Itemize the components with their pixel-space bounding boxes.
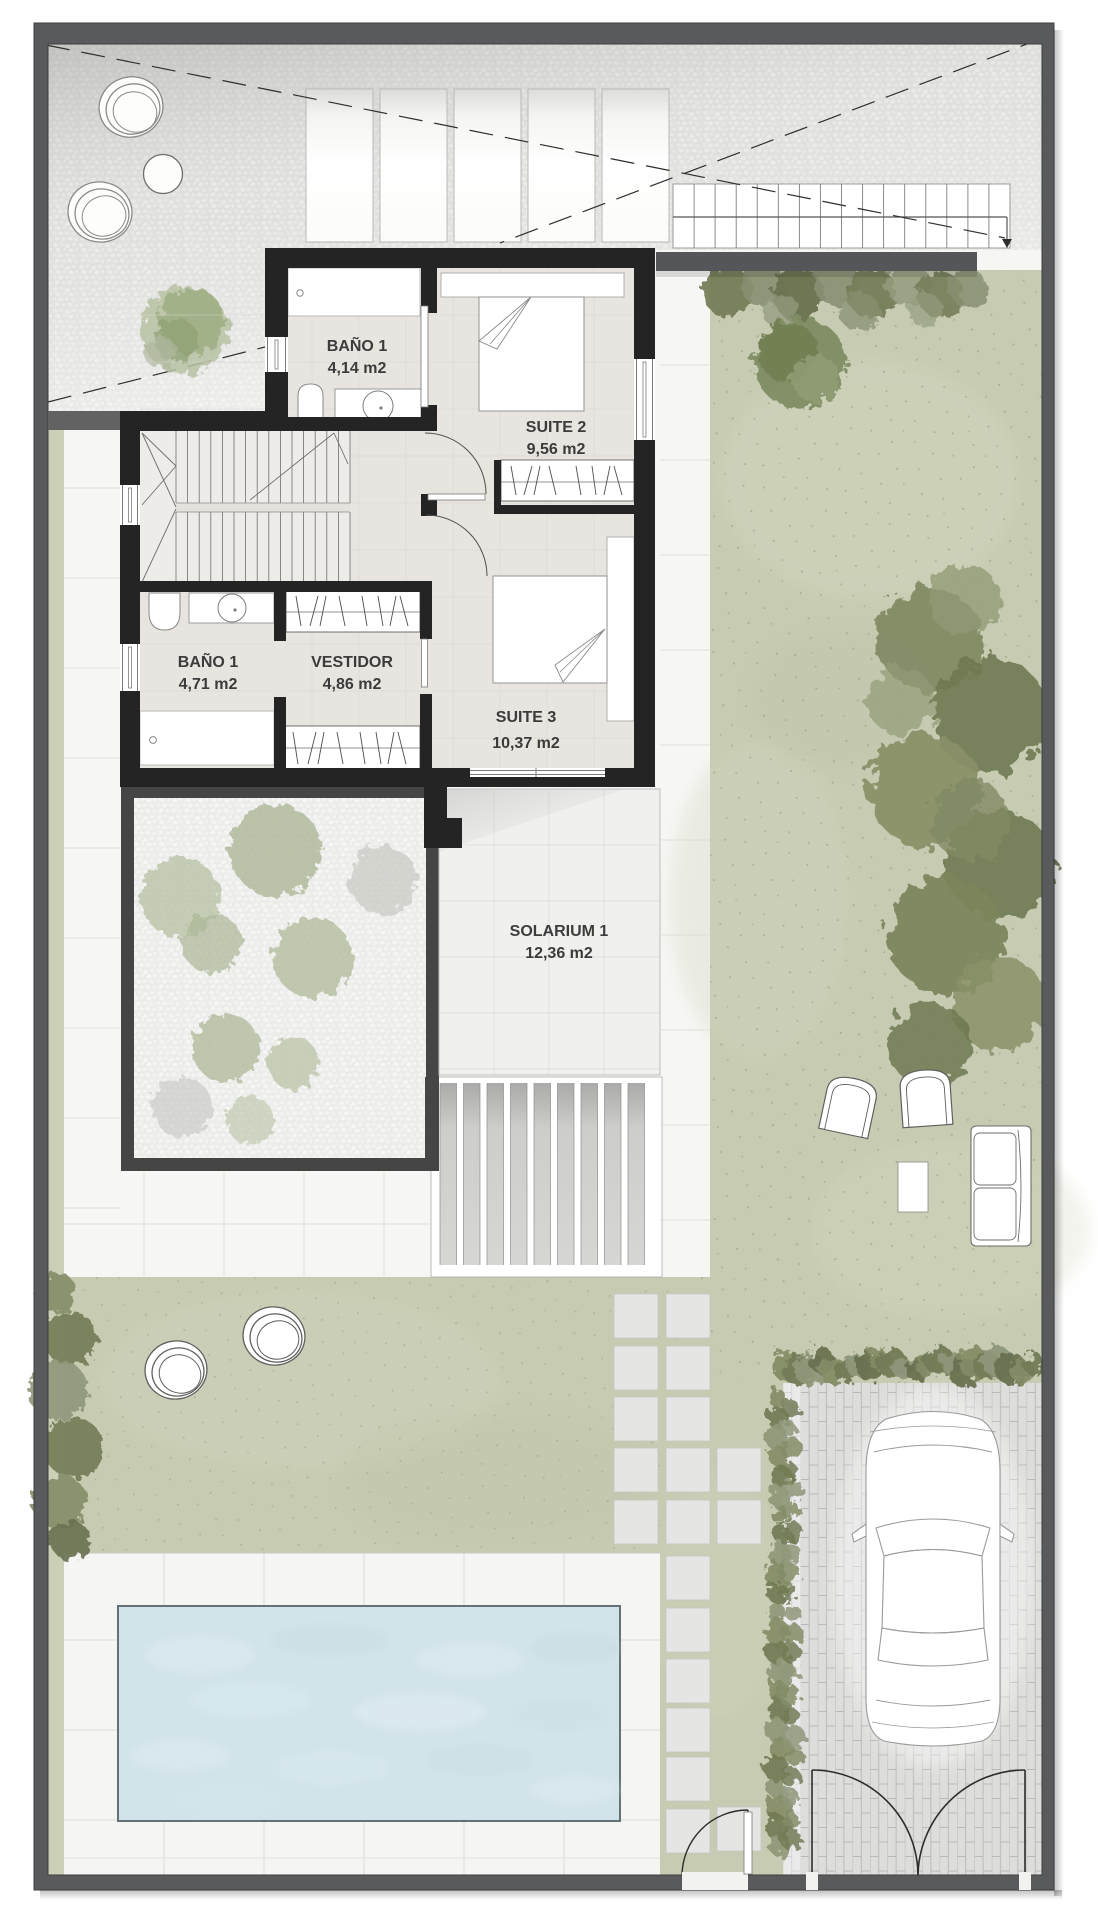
svg-text:10,37 m2: 10,37 m2 (492, 735, 560, 752)
svg-text:4,86 m2: 4,86 m2 (323, 676, 382, 693)
svg-text:4,14 m2: 4,14 m2 (328, 360, 387, 377)
svg-text:4,71 m2: 4,71 m2 (179, 676, 238, 693)
svg-text:BAÑO 1: BAÑO 1 (327, 335, 388, 355)
svg-text:12,36 m2: 12,36 m2 (525, 945, 593, 962)
svg-text:SUITE 2: SUITE 2 (526, 419, 587, 436)
svg-text:VESTIDOR: VESTIDOR (311, 654, 393, 671)
svg-text:BAÑO 1: BAÑO 1 (178, 651, 239, 671)
svg-text:9,56 m2: 9,56 m2 (527, 441, 586, 458)
svg-text:SUITE 3: SUITE 3 (496, 709, 557, 726)
svg-text:SOLARIUM 1: SOLARIUM 1 (510, 923, 609, 940)
